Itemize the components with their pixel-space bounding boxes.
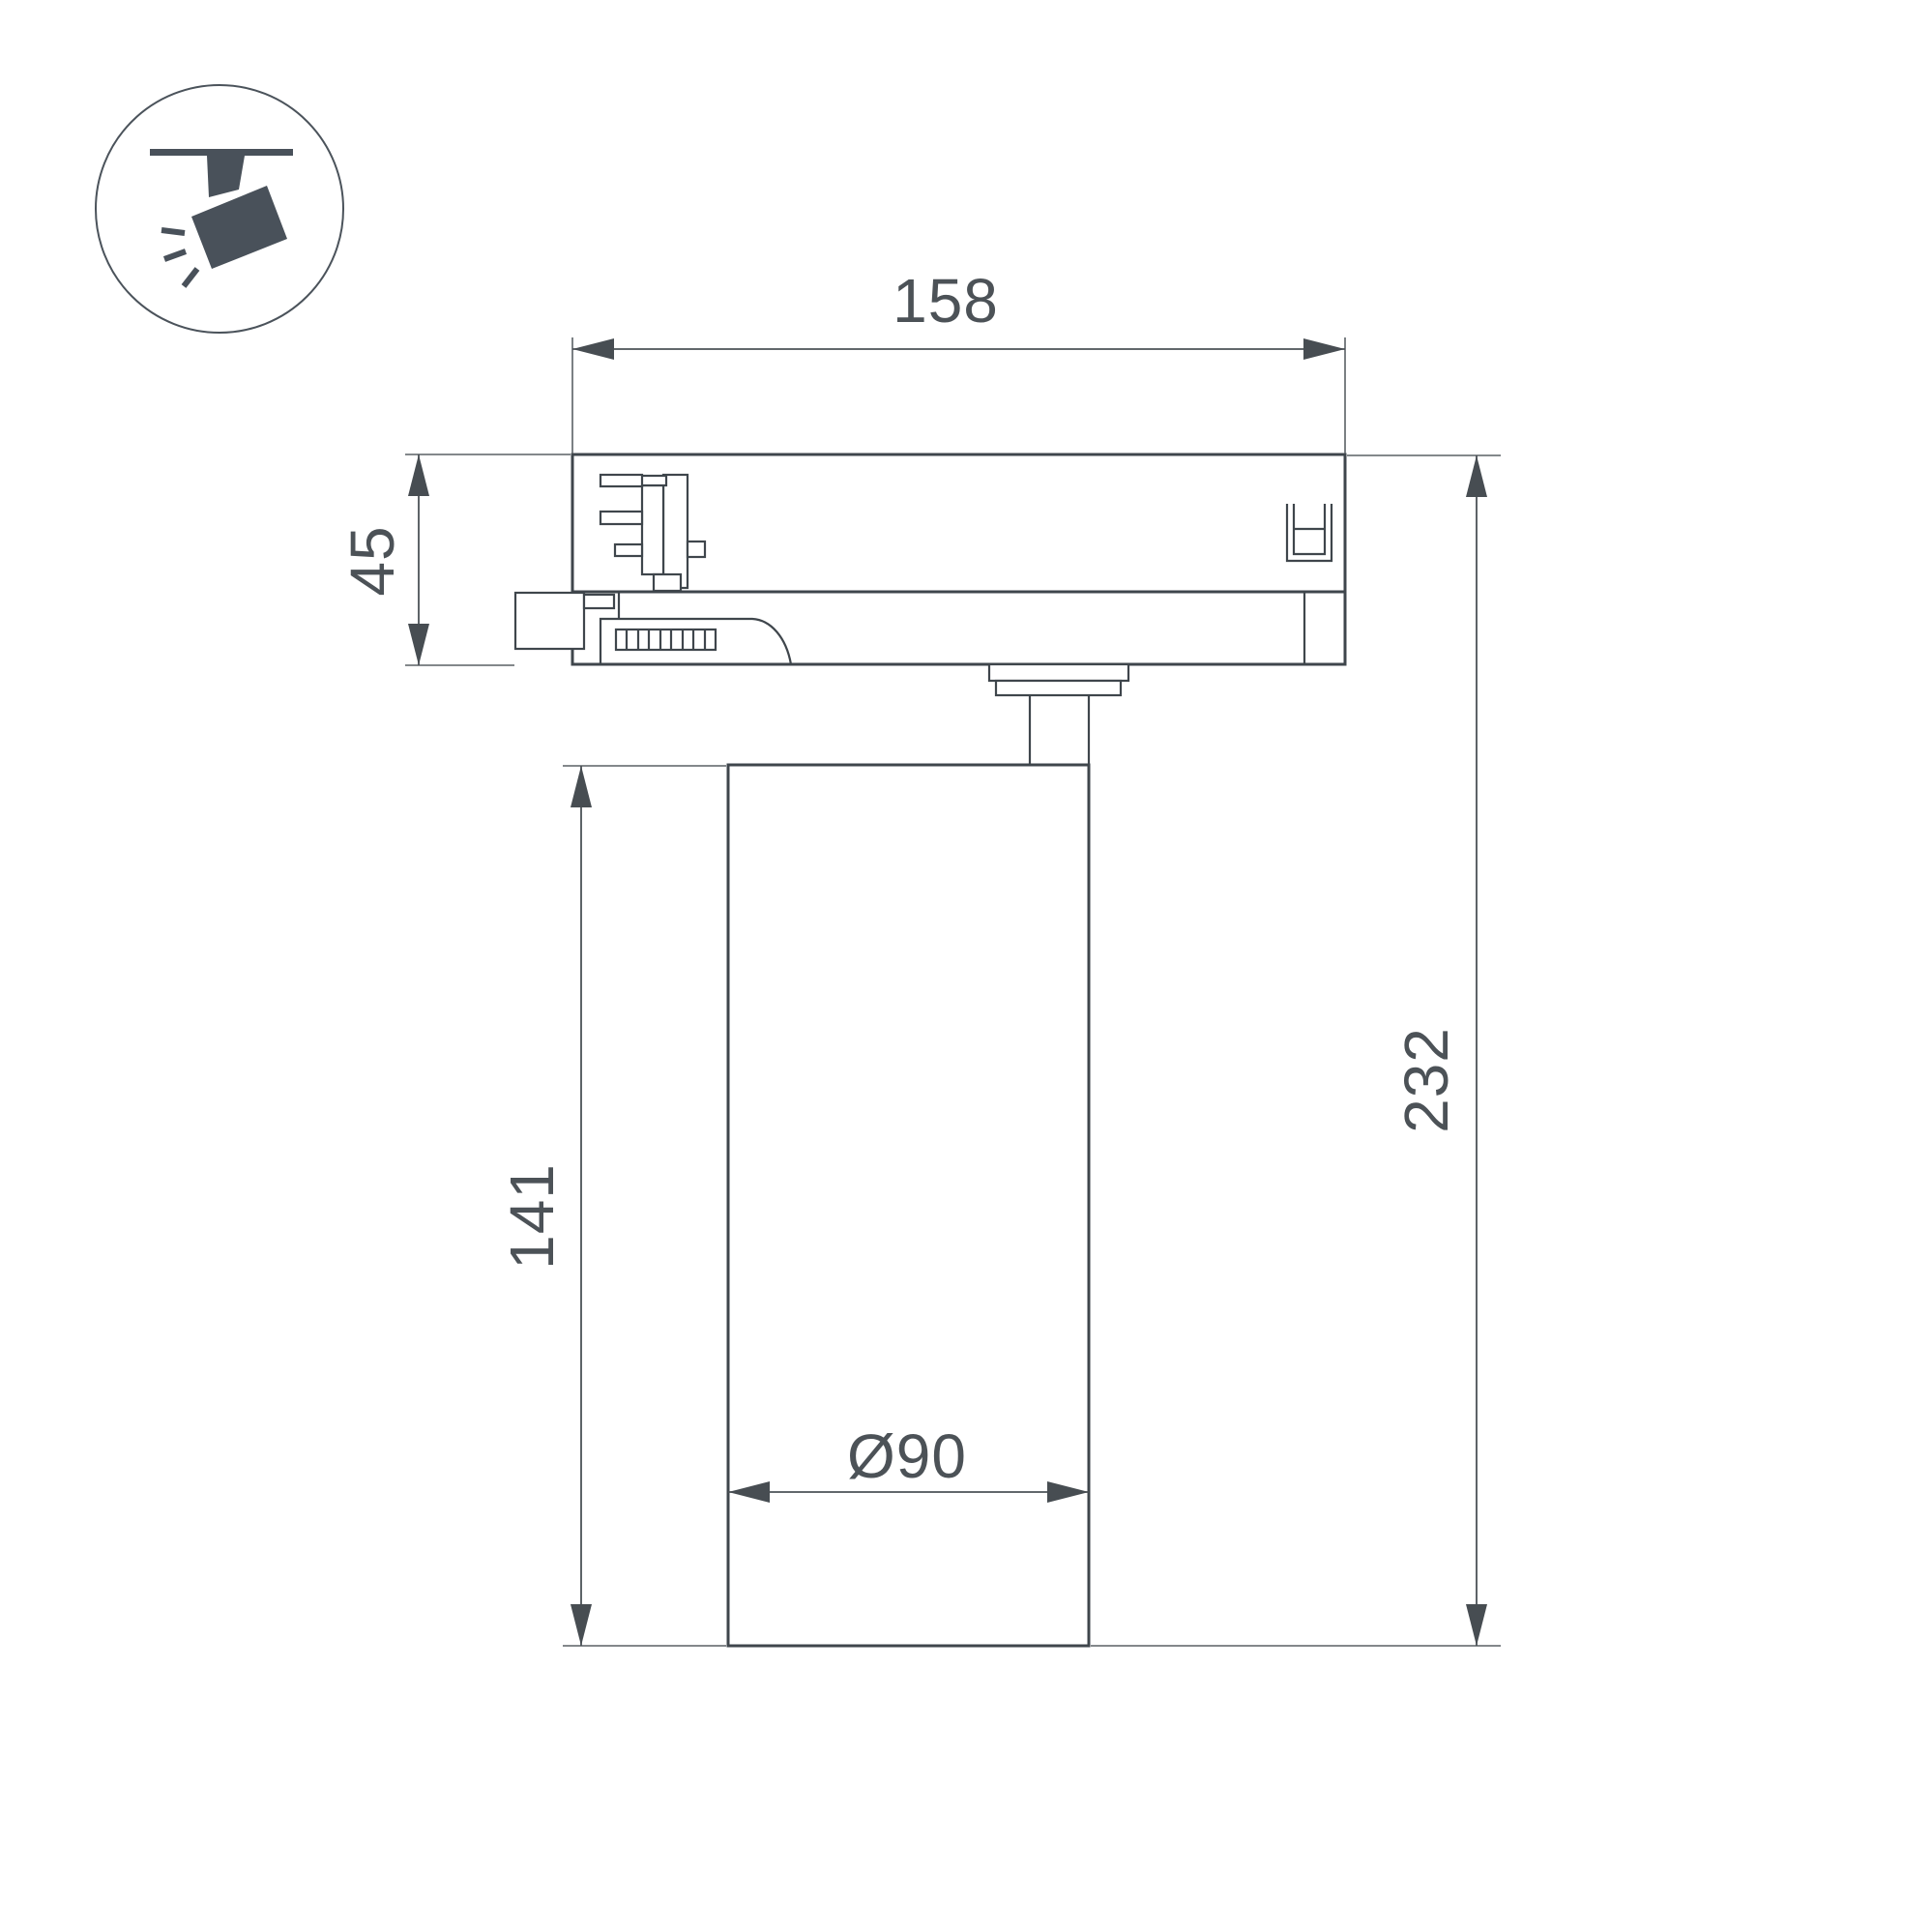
arrowhead-down bbox=[571, 1604, 592, 1646]
arrowhead-up bbox=[571, 766, 592, 807]
arrowhead-down bbox=[408, 624, 429, 665]
pedestal-step-1 bbox=[989, 664, 1128, 681]
arrowhead-up bbox=[408, 454, 429, 496]
dimension-label-45: 45 bbox=[337, 525, 407, 596]
dimension-label-141: 141 bbox=[497, 1163, 567, 1270]
arrowhead-down bbox=[1466, 1604, 1487, 1646]
icon-stem bbox=[207, 156, 245, 197]
dimension-top-width: 158 bbox=[572, 266, 1345, 454]
contact-pin bbox=[615, 544, 642, 556]
clamp-tab bbox=[584, 595, 614, 608]
lamp-cylinder bbox=[728, 765, 1089, 1646]
contact-rail bbox=[642, 485, 663, 574]
icon-light-ray bbox=[161, 230, 185, 233]
track-spotlight-icon bbox=[96, 85, 343, 333]
contact-pin bbox=[600, 512, 642, 524]
contact-foot bbox=[654, 574, 681, 591]
arrowhead-up bbox=[1466, 455, 1487, 497]
technical-drawing-page: 158 45 141 232 bbox=[0, 0, 1932, 1932]
dimension-body-height: 141 bbox=[497, 766, 726, 1646]
pedestal-step-2 bbox=[996, 681, 1121, 695]
swivel-pedestal bbox=[989, 664, 1128, 765]
drawing-svg: 158 45 141 232 bbox=[0, 0, 1932, 1932]
dimension-label-diameter: Ø90 bbox=[847, 1421, 967, 1491]
dimension-label-158: 158 bbox=[893, 266, 999, 336]
contact-notch bbox=[688, 542, 705, 557]
icon-light-ray bbox=[184, 269, 197, 286]
arrowhead-left bbox=[572, 338, 614, 360]
contact-column bbox=[663, 475, 688, 588]
icon-track-bar bbox=[150, 149, 293, 156]
dimension-label-232: 232 bbox=[1391, 1027, 1461, 1133]
arrowhead-right bbox=[1303, 338, 1345, 360]
contact-pin bbox=[600, 475, 642, 486]
clamp-block bbox=[515, 593, 584, 649]
contact-cap bbox=[640, 476, 666, 485]
icon-lamp-head bbox=[191, 186, 287, 269]
icon-light-ray bbox=[164, 251, 186, 259]
